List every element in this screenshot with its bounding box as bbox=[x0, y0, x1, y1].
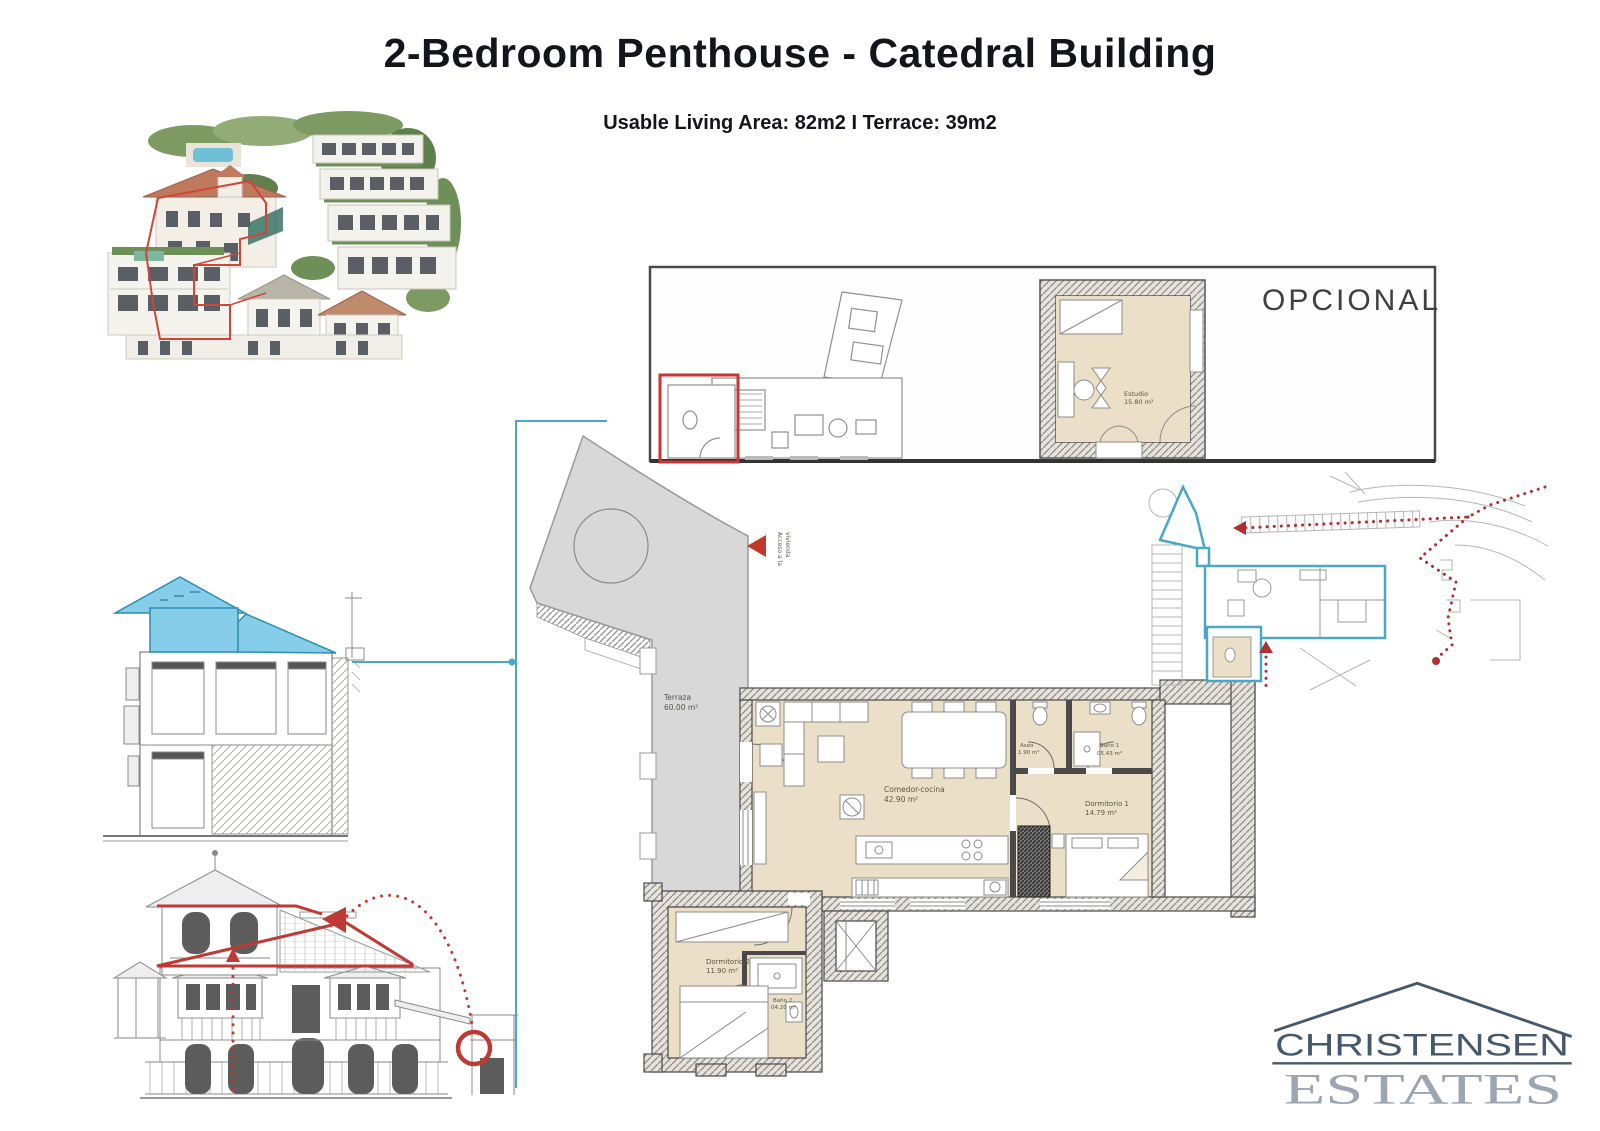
opcional-label: OPCIONAL bbox=[1262, 284, 1438, 317]
dorm2-label: Dormitorio 2 bbox=[706, 958, 750, 966]
bano1-area: 05.43 m² bbox=[1097, 750, 1122, 757]
terrace-area-label: 60.00 m² bbox=[664, 703, 698, 712]
estudio-label: Estudio bbox=[1124, 390, 1148, 398]
terrace-label: Terraza bbox=[663, 693, 691, 702]
lift-shaft bbox=[836, 921, 876, 971]
section-drawing bbox=[100, 555, 520, 845]
aerial-render-image bbox=[98, 103, 463, 368]
elevation-drawing bbox=[110, 840, 520, 1120]
logo-type: ESTATES bbox=[1284, 1065, 1562, 1111]
dorm1-area: 14.79 m² bbox=[1085, 809, 1117, 817]
bano1-label: Baño 1 bbox=[1100, 743, 1119, 749]
penthouse-section-highlight bbox=[115, 577, 336, 653]
bano2-area: 04.20 m² bbox=[771, 1004, 796, 1011]
page-title: 2-Bedroom Penthouse - Catedral Building bbox=[0, 30, 1600, 77]
pool bbox=[193, 148, 233, 162]
access-label-2: vivienda bbox=[784, 532, 791, 558]
dorm2-area: 11.90 m² bbox=[706, 967, 738, 975]
brochure-page: 2-Bedroom Penthouse - Catedral Building … bbox=[0, 0, 1600, 1131]
comedor-label: Comedor-cocina bbox=[884, 785, 945, 794]
logo-name: CHRISTENSEN bbox=[1275, 1028, 1569, 1063]
comedor-area: 42.90 m² bbox=[884, 795, 918, 804]
site-plan bbox=[1140, 470, 1570, 700]
access-label-1: Acceso a la bbox=[776, 532, 783, 566]
dorm1-label: Dormitorio 1 bbox=[1085, 800, 1129, 808]
villa-facade bbox=[114, 851, 518, 1099]
access-marker-icon bbox=[747, 535, 766, 557]
aseo-label: Aseo bbox=[1020, 743, 1034, 749]
agency-logo: CHRISTENSEN ESTATES bbox=[1264, 968, 1580, 1111]
aseo-area: 1.90 m² bbox=[1018, 749, 1040, 756]
bano2-label: Baño 2 bbox=[773, 998, 792, 1004]
site-plan-fixture bbox=[1225, 648, 1235, 662]
